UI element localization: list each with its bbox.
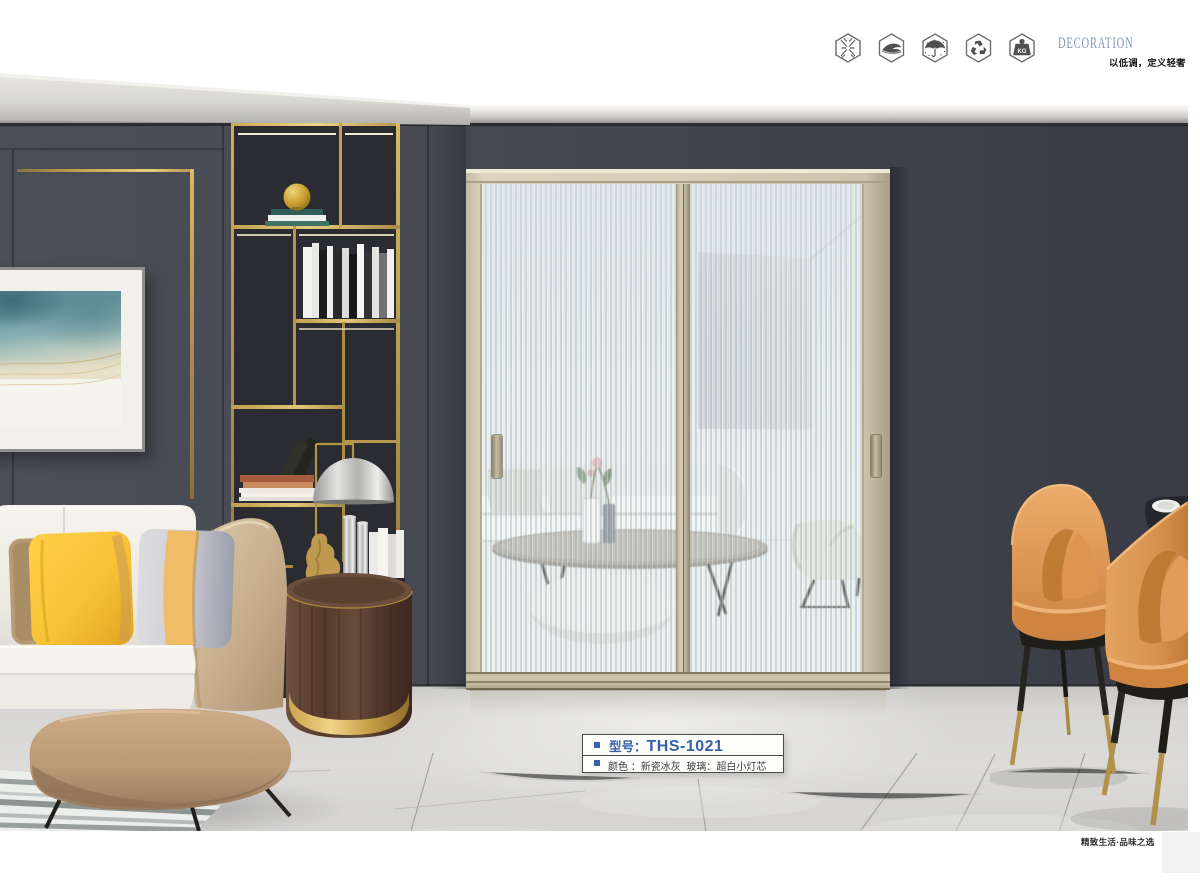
svg-text:KG: KG	[1018, 49, 1027, 55]
